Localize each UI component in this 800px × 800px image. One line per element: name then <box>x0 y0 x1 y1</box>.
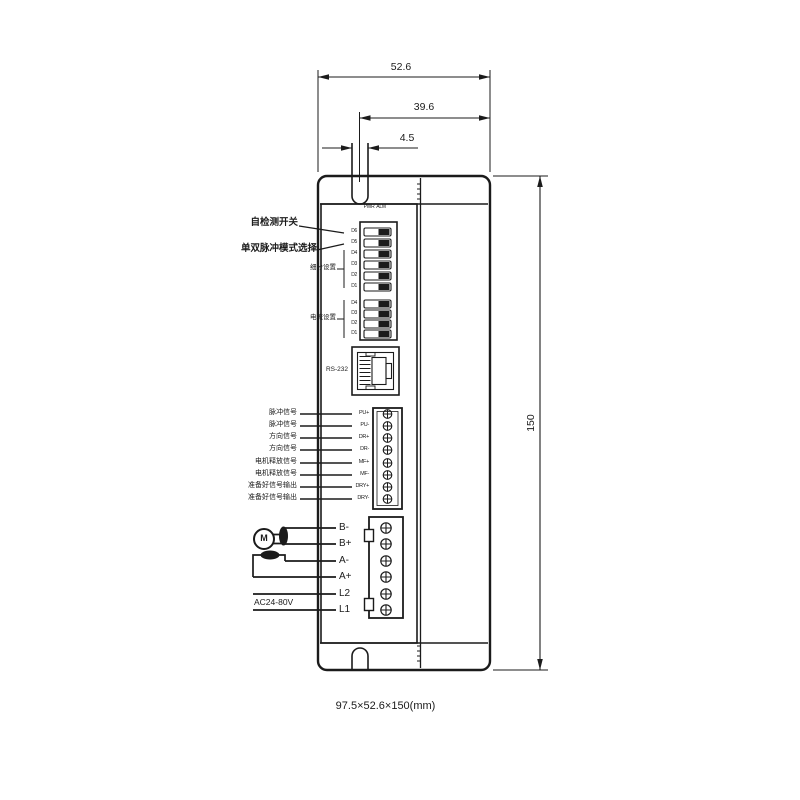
bottom-mounting-slot <box>352 648 368 670</box>
dim-height-label: 150 <box>525 411 537 435</box>
power-connector <box>365 517 404 618</box>
signal-pin-label: PU+ <box>350 410 369 416</box>
signal-name-label: 电机释放信号 <box>228 470 297 478</box>
power-pin-label: L2 <box>339 588 357 600</box>
ac-input-label: AC24-80V <box>254 598 304 608</box>
dip-bank1-pin-label: D6 <box>345 229 357 235</box>
power-pin-label: A+ <box>339 571 357 583</box>
dip-bank1-pin-label: D2 <box>345 273 357 279</box>
dip-bank2-switches <box>364 300 391 338</box>
signal-name-label: 脉冲信号 <box>228 421 297 429</box>
dip-bank1-pin-label: D1 <box>345 284 357 290</box>
signal-name-label: 方向信号 <box>228 433 297 441</box>
signal-leader-lines <box>300 414 352 499</box>
rs232-label: RS-232 <box>316 366 348 373</box>
self-test-switch-label: 自检测开关 <box>236 218 298 229</box>
signal-connector <box>373 408 402 509</box>
phase-a-winding <box>261 551 280 560</box>
stepper-driver-dimension-diagram: 52.6 39.6 4.5 150 97.5×52.6×150(mm) PWR … <box>0 0 800 800</box>
dip-bank1-switches <box>364 228 391 291</box>
dim-slot-label: 4.5 <box>393 132 421 144</box>
pulse-mode-label: 单双脉冲模式选择 <box>224 244 317 255</box>
signal-pin-label: MF- <box>350 471 369 477</box>
signal-pin-label: DRY+ <box>350 483 369 489</box>
signal-name-label: 脉冲信号 <box>228 409 297 417</box>
overall-size-label: 97.5×52.6×150(mm) <box>328 700 443 713</box>
current-setting-label: 电流设置 <box>300 314 336 321</box>
signal-name-label: 电机释放信号 <box>228 458 297 466</box>
motor-symbol-label: M <box>257 533 271 543</box>
rs232-jack <box>352 347 399 395</box>
microstep-setting-label: 细分设置 <box>300 264 336 271</box>
signal-pin-label: PU- <box>350 422 369 428</box>
dip-group-brackets <box>337 250 344 338</box>
led-label-alm: ALM <box>373 205 389 211</box>
signal-name-label: 准备好信号输出 <box>228 494 297 502</box>
driver-outline-drawing <box>0 0 800 800</box>
signal-name-label: 方向信号 <box>228 445 297 453</box>
signal-pin-label: DR- <box>350 446 369 452</box>
width-extension-lines <box>318 70 490 172</box>
dip-bank2-pin-label: D4 <box>345 301 357 307</box>
signal-pin-label: MF+ <box>350 459 369 465</box>
signal-name-label: 准备好信号输出 <box>228 482 297 490</box>
power-pin-label: L1 <box>339 604 357 616</box>
phase-b-winding <box>279 527 288 546</box>
dip-bank1-pin-label: D5 <box>345 240 357 246</box>
dim-inner-width-label: 39.6 <box>401 101 447 113</box>
dip-bank1-pin-label: D3 <box>345 262 357 268</box>
dip-bank1-pin-label: D4 <box>345 251 357 257</box>
dip-bank2-pin-label: D1 <box>345 331 357 337</box>
power-pin-label: B+ <box>339 538 357 550</box>
signal-pin-label: DR+ <box>350 434 369 440</box>
dim-width-label: 52.6 <box>378 61 424 73</box>
dip-bank2-pin-label: D3 <box>345 311 357 317</box>
power-pin-label: A- <box>339 555 357 567</box>
signal-pin-label: DRY- <box>350 495 369 501</box>
dip-bank2-pin-label: D2 <box>345 321 357 327</box>
power-pin-label: B- <box>339 522 357 534</box>
